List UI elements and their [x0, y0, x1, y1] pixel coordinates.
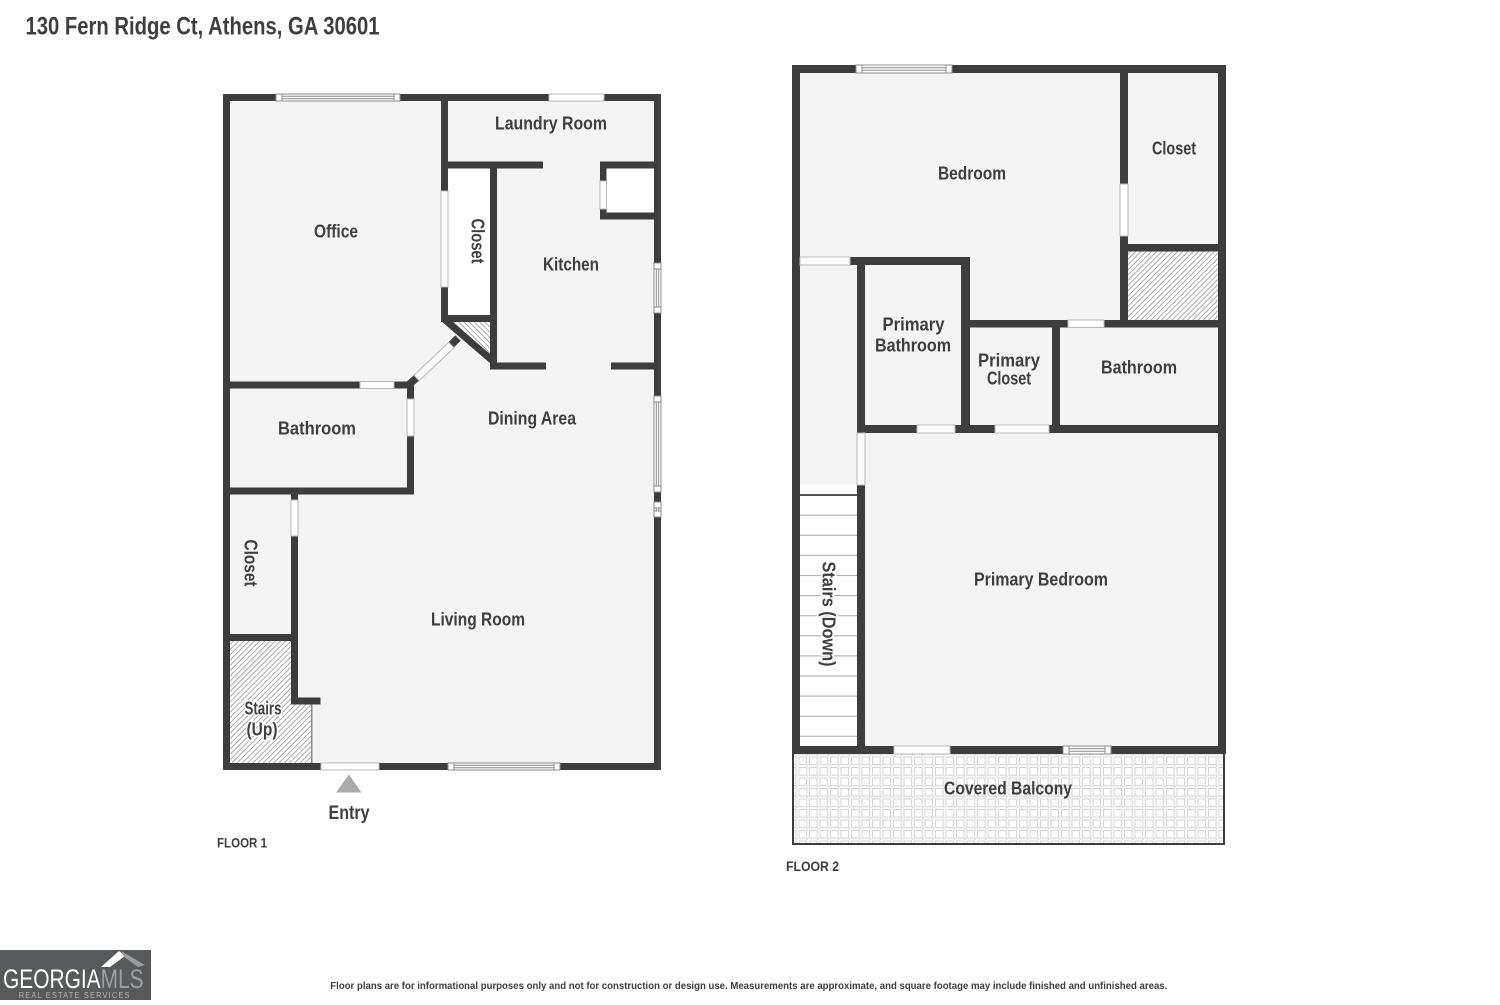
- svg-text:Primary Bedroom: Primary Bedroom: [974, 570, 1108, 590]
- svg-text:Dining Area: Dining Area: [488, 409, 577, 429]
- svg-text:130 Fern Ridge Ct, Athens, GA: 130 Fern Ridge Ct, Athens, GA 30601: [26, 13, 380, 41]
- svg-text:Entry: Entry: [329, 803, 370, 824]
- svg-text:Bathroom: Bathroom: [1101, 358, 1177, 378]
- svg-text:Stairs (Down): Stairs (Down): [819, 562, 839, 667]
- svg-text:Bathroom: Bathroom: [875, 336, 951, 356]
- svg-text:(Up): (Up): [247, 720, 278, 740]
- svg-text:Covered Balcony: Covered Balcony: [944, 779, 1072, 799]
- svg-text:Closet: Closet: [987, 369, 1031, 389]
- svg-text:Office: Office: [314, 222, 358, 242]
- svg-text:Primary: Primary: [883, 315, 945, 335]
- svg-text:Closet: Closet: [241, 540, 261, 587]
- svg-text:Closet: Closet: [1152, 139, 1196, 159]
- svg-text:Floor plans are for informatio: Floor plans are for informational purpos…: [330, 980, 1167, 992]
- svg-text:Bathroom: Bathroom: [278, 419, 356, 439]
- svg-text:FLOOR 2: FLOOR 2: [786, 858, 839, 874]
- svg-text:REAL ESTATE SERVICES: REAL ESTATE SERVICES: [19, 991, 131, 1000]
- svg-text:Laundry Room: Laundry Room: [495, 114, 607, 134]
- svg-text:Closet: Closet: [468, 219, 488, 264]
- svg-text:FLOOR 1: FLOOR 1: [217, 835, 267, 851]
- svg-text:Bedroom: Bedroom: [938, 164, 1006, 184]
- svg-text:Living Room: Living Room: [431, 610, 525, 630]
- svg-text:Primary: Primary: [978, 351, 1040, 371]
- svg-text:Kitchen: Kitchen: [543, 255, 599, 275]
- svg-text:Stairs: Stairs: [245, 699, 282, 719]
